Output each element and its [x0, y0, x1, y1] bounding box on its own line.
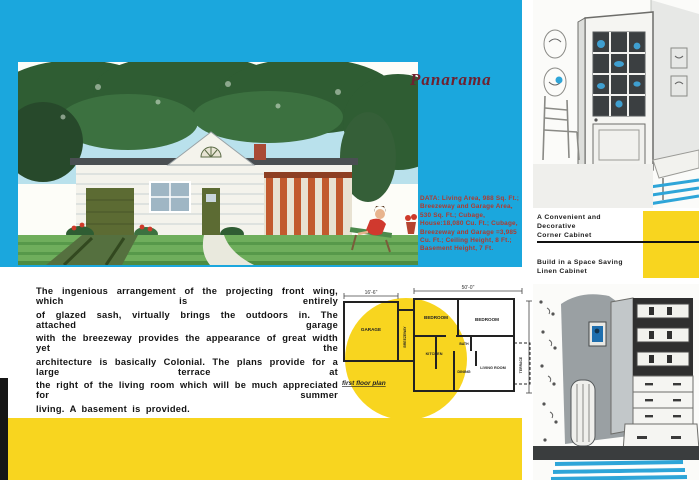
- room-bath: BATH: [459, 342, 469, 346]
- chimney: [254, 144, 266, 160]
- yellow-bottom-band: [8, 418, 522, 480]
- paragraph-line: with the breezeway provides the appearan…: [36, 333, 338, 357]
- window-left: [150, 182, 190, 212]
- house-data-text: DATA: Living Area, 988 Sq. Ft.; Breezewa…: [420, 195, 521, 254]
- caption-corner-cabinet: A Convenient and Decorative Corner Cabin…: [537, 213, 641, 240]
- corner-cabinet-photo: [533, 0, 699, 208]
- yellow-circle: [345, 298, 467, 420]
- room-bedroom1: BEDROOM: [424, 315, 448, 320]
- room-bedroom2: BEDROOM: [475, 317, 499, 322]
- room-breezeway: BREEZEWAY: [403, 326, 407, 348]
- flower-pot: [405, 214, 417, 234]
- floor-plan: 16'-6" 50'-0" 30'-0" GARAGE BREEZEWAY: [336, 281, 536, 431]
- wall-picture: [589, 322, 606, 346]
- plan-caption: first floor plan: [342, 380, 386, 387]
- page-edge-shadow: [0, 378, 8, 480]
- house-illustration-svg: [18, 62, 418, 265]
- linen-cabinet-svg: [533, 284, 699, 480]
- cabinet-door-open: [611, 298, 633, 434]
- room-kitchen: KITCHEN: [426, 352, 443, 356]
- linen-drawers: [623, 376, 699, 452]
- yellow-accent-rect: [643, 211, 699, 278]
- caption-line: Build in a Space Saving: [537, 258, 641, 267]
- room-living: LIVING ROOM: [480, 366, 506, 370]
- caption-linen-cabinet: Build in a Space Saving Linen Cabinet: [537, 258, 641, 276]
- caption-line: Corner Cabinet: [537, 231, 641, 240]
- blue-accent-dot: [556, 77, 563, 84]
- room-terrace: TERRACE: [519, 356, 523, 373]
- glazed-wing: [264, 172, 352, 235]
- paragraph-line: architecture is basically Colonial. The …: [36, 357, 338, 381]
- paragraph-line: the right of the living room which will …: [36, 380, 338, 404]
- caption-line: A Convenient and Decorative: [537, 213, 641, 231]
- dark-floor: [533, 446, 699, 460]
- radiator: [571, 380, 595, 446]
- paragraph-line: The ingenious arrangement of the project…: [36, 286, 338, 310]
- linen-cabinet-photo: [533, 284, 699, 480]
- divider-rule: [537, 241, 699, 243]
- linen-shelves: [633, 298, 693, 376]
- paragraph-line: of glazed sash, virtually brings the out…: [36, 310, 338, 334]
- room-garage: GARAGE: [361, 327, 381, 332]
- house-illustration: [18, 62, 418, 265]
- dim-garage-width: 16'-6": [365, 290, 378, 296]
- garage-door: [86, 188, 134, 235]
- caption-line: Linen Cabinet: [537, 267, 641, 276]
- dim-house-width: 50'-0": [462, 285, 475, 291]
- china-cabinet: [578, 12, 653, 178]
- brochure-page: Panarama DATA: Living Area, 988 Sq. Ft.;…: [0, 0, 699, 480]
- description-paragraph: The ingenious arrangement of the project…: [36, 286, 338, 427]
- room-dining: DINING: [457, 370, 470, 374]
- page-title: Panarama: [410, 70, 520, 90]
- floor-plan-svg: 16'-6" 50'-0" 30'-0" GARAGE BREEZEWAY: [336, 281, 536, 431]
- corner-cabinet-svg: [533, 0, 699, 208]
- entry-door: [202, 188, 220, 235]
